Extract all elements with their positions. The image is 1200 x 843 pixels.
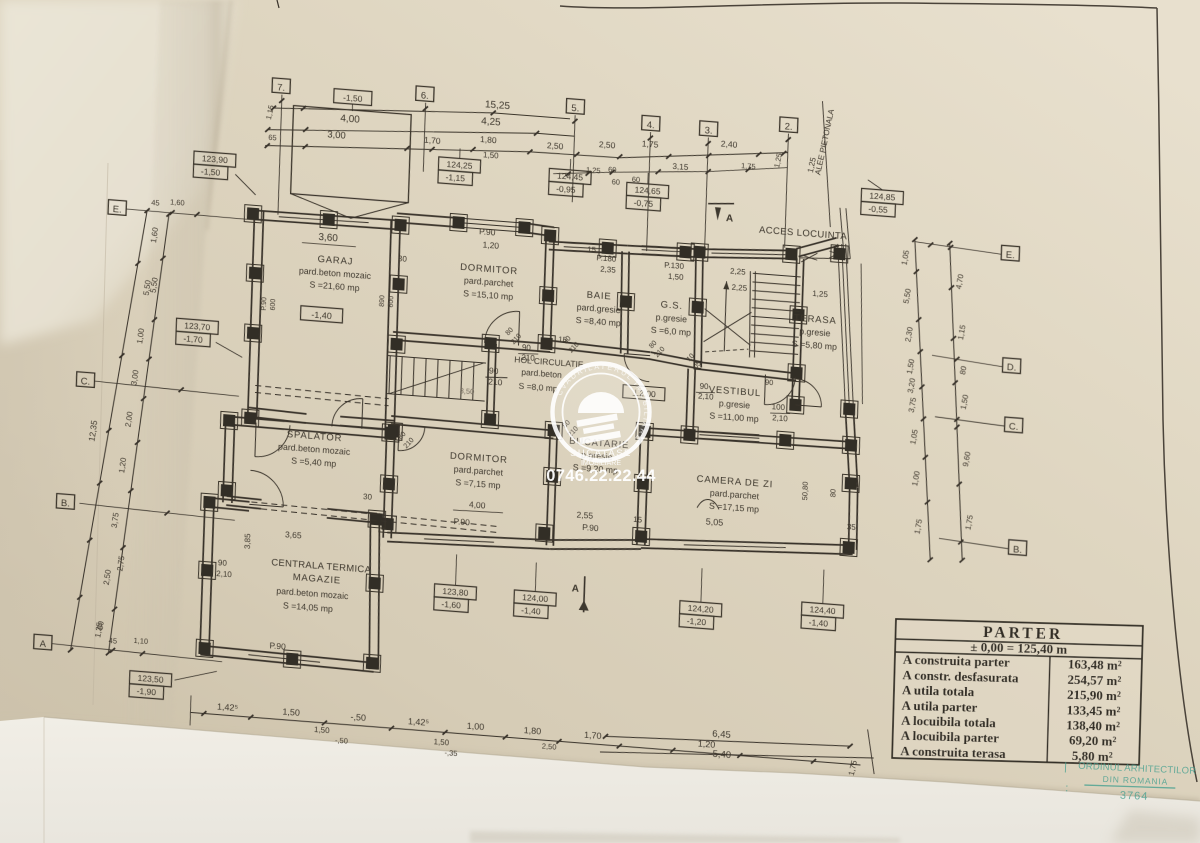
svg-text:P.180: P.180 xyxy=(596,253,617,264)
svg-text:A construita terasa: A construita terasa xyxy=(900,743,1006,761)
svg-text:C.: C. xyxy=(1009,421,1019,433)
svg-text:30: 30 xyxy=(363,492,373,502)
svg-text:-1,40: -1,40 xyxy=(311,310,332,322)
svg-text:0746.22.22.44: 0746.22.22.44 xyxy=(546,467,656,485)
svg-text:|: | xyxy=(1064,761,1067,773)
svg-text:123,50: 123,50 xyxy=(137,673,164,685)
svg-text:163,48 m²: 163,48 m² xyxy=(1068,657,1122,673)
svg-text:A: A xyxy=(572,583,580,595)
svg-text:124,25: 124,25 xyxy=(446,159,473,171)
svg-text:6.: 6. xyxy=(421,90,429,102)
svg-text:6,45: 6,45 xyxy=(712,729,731,741)
svg-text:600: 600 xyxy=(270,298,277,310)
svg-text:1,75: 1,75 xyxy=(642,138,659,149)
svg-text:90: 90 xyxy=(489,365,499,376)
svg-text:-0,95: -0,95 xyxy=(556,184,576,196)
svg-text:124,45: 124,45 xyxy=(557,171,584,183)
svg-text:D.: D. xyxy=(1007,362,1017,374)
svg-text:-1,20: -1,20 xyxy=(687,616,707,628)
svg-text:2,25: 2,25 xyxy=(731,283,747,293)
svg-text:1,50: 1,50 xyxy=(483,150,499,160)
svg-text:2,50: 2,50 xyxy=(599,139,616,150)
svg-text:3,85: 3,85 xyxy=(243,533,253,550)
svg-text:90: 90 xyxy=(218,558,228,568)
svg-text:3764: 3764 xyxy=(1120,790,1149,803)
svg-text:124,40: 124,40 xyxy=(809,604,836,616)
svg-text:123,70: 123,70 xyxy=(184,320,211,332)
svg-text:2,55: 2,55 xyxy=(576,509,593,520)
svg-text:7.: 7. xyxy=(277,82,285,94)
svg-text:138,40 m²: 138,40 m² xyxy=(1066,717,1120,733)
svg-text:-1,50: -1,50 xyxy=(201,166,221,178)
svg-text:45: 45 xyxy=(151,198,160,208)
svg-text:3,65: 3,65 xyxy=(285,529,302,540)
svg-text:123,90: 123,90 xyxy=(202,153,229,165)
svg-text:-1,60: -1,60 xyxy=(441,599,461,611)
svg-text:-1,40: -1,40 xyxy=(521,605,541,617)
svg-text:124,20: 124,20 xyxy=(688,603,715,615)
svg-text:1,80: 1,80 xyxy=(524,725,542,736)
svg-text:-,50: -,50 xyxy=(335,736,348,746)
svg-text:1,42⁵: 1,42⁵ xyxy=(217,701,239,713)
svg-text:1,25: 1,25 xyxy=(586,165,601,175)
svg-text:4,00: 4,00 xyxy=(469,499,486,510)
svg-text:3,15: 3,15 xyxy=(672,162,689,172)
svg-text:-,35: -,35 xyxy=(444,748,457,758)
svg-text:5.: 5. xyxy=(571,103,579,115)
svg-text:30: 30 xyxy=(398,254,408,264)
svg-text:1,50: 1,50 xyxy=(282,707,300,718)
svg-text:35: 35 xyxy=(847,522,857,532)
svg-text:2,40: 2,40 xyxy=(721,138,738,149)
svg-text:2,25: 2,25 xyxy=(730,267,746,277)
svg-text:1,50: 1,50 xyxy=(668,272,684,282)
svg-text:P.90: P.90 xyxy=(261,297,268,311)
svg-text:-0,55: -0,55 xyxy=(868,204,888,216)
svg-text:1,42⁵: 1,42⁵ xyxy=(408,716,430,728)
svg-text:124,00: 124,00 xyxy=(522,592,549,604)
svg-text:124,65: 124,65 xyxy=(634,185,661,197)
svg-text:-1,50: -1,50 xyxy=(343,92,363,104)
svg-text:-1,15: -1,15 xyxy=(445,172,465,184)
svg-text:-0,75: -0,75 xyxy=(634,198,654,210)
svg-text:1,60: 1,60 xyxy=(170,197,185,207)
svg-text:1,25: 1,25 xyxy=(812,289,828,299)
svg-text:90: 90 xyxy=(522,343,532,353)
svg-text:123,80: 123,80 xyxy=(442,586,469,598)
svg-text:1,75: 1,75 xyxy=(741,161,756,171)
svg-text:2,10: 2,10 xyxy=(216,569,232,579)
svg-text:60: 60 xyxy=(608,165,617,175)
svg-text:4.: 4. xyxy=(647,120,655,132)
svg-text:3,50: 3,50 xyxy=(460,386,475,396)
svg-text:3,00: 3,00 xyxy=(327,129,346,141)
svg-text:80: 80 xyxy=(828,489,837,498)
svg-text:P.90: P.90 xyxy=(582,522,599,533)
svg-text:1,70: 1,70 xyxy=(424,135,441,146)
svg-text:P.130: P.130 xyxy=(664,260,685,271)
svg-text:2,50: 2,50 xyxy=(547,140,564,151)
svg-text:C.: C. xyxy=(81,376,91,388)
svg-text:3.: 3. xyxy=(704,125,712,137)
svg-text:A: A xyxy=(726,213,734,225)
svg-text:2,35: 2,35 xyxy=(600,265,616,275)
svg-text:2,50: 2,50 xyxy=(542,742,557,752)
svg-text:15,25: 15,25 xyxy=(485,99,511,112)
svg-text:2.: 2. xyxy=(785,121,793,133)
svg-text:50,80: 50,80 xyxy=(800,481,810,500)
svg-text:G.S.: G.S. xyxy=(661,299,684,312)
svg-text:215,90 m²: 215,90 m² xyxy=(1067,687,1121,703)
svg-text:5,05: 5,05 xyxy=(706,516,724,527)
svg-text:15: 15 xyxy=(558,335,567,345)
svg-text:A utila totala: A utila totala xyxy=(902,682,975,699)
svg-text:90: 90 xyxy=(699,382,709,392)
svg-text:E.: E. xyxy=(1006,250,1015,262)
svg-text:15: 15 xyxy=(633,515,643,525)
svg-text:4,25: 4,25 xyxy=(481,116,501,129)
svg-text::: : xyxy=(1065,782,1069,794)
svg-text:P.90: P.90 xyxy=(453,516,470,527)
svg-text:1,70: 1,70 xyxy=(584,730,602,741)
svg-text:-,50: -,50 xyxy=(350,712,366,723)
svg-text:15: 15 xyxy=(587,245,596,255)
svg-text:600: 600 xyxy=(388,295,395,307)
svg-text:124,85: 124,85 xyxy=(869,191,896,203)
svg-text:P.90: P.90 xyxy=(269,640,286,651)
svg-text:133,45 m²: 133,45 m² xyxy=(1066,702,1120,718)
svg-text:B.: B. xyxy=(1013,544,1022,556)
svg-text:3,60: 3,60 xyxy=(318,232,338,245)
svg-text:890: 890 xyxy=(379,295,386,307)
svg-text:254,57 m²: 254,57 m² xyxy=(1067,672,1121,688)
svg-text:E.: E. xyxy=(113,204,122,216)
svg-text:1,50: 1,50 xyxy=(314,725,330,735)
svg-text:1,00: 1,00 xyxy=(467,721,485,732)
svg-text:-1,40: -1,40 xyxy=(809,617,829,629)
svg-text:1,10: 1,10 xyxy=(133,636,148,646)
svg-text:-1,90: -1,90 xyxy=(137,686,157,698)
svg-text:2,10: 2,10 xyxy=(772,413,788,423)
svg-text:1,20: 1,20 xyxy=(482,239,499,250)
svg-text:B.: B. xyxy=(61,498,70,510)
svg-text:1,80: 1,80 xyxy=(480,134,497,145)
svg-text:BAIE: BAIE xyxy=(587,290,612,303)
svg-text:IMOBILIARE: IMOBILIARE xyxy=(581,460,621,467)
svg-text:69,20 m²: 69,20 m² xyxy=(1069,733,1117,749)
svg-text:1,50: 1,50 xyxy=(433,737,449,747)
svg-text:A: A xyxy=(39,639,46,651)
svg-text:5,40: 5,40 xyxy=(712,749,731,761)
svg-text:60: 60 xyxy=(612,177,621,187)
svg-text:SUCATASE: SUCATASE xyxy=(570,448,632,459)
svg-text:100: 100 xyxy=(772,402,786,412)
svg-text:4,00: 4,00 xyxy=(340,113,360,126)
svg-text:-1,70: -1,70 xyxy=(183,333,203,345)
svg-text:P.90: P.90 xyxy=(479,226,496,237)
svg-text:90: 90 xyxy=(765,378,774,388)
svg-text:65: 65 xyxy=(268,133,277,143)
